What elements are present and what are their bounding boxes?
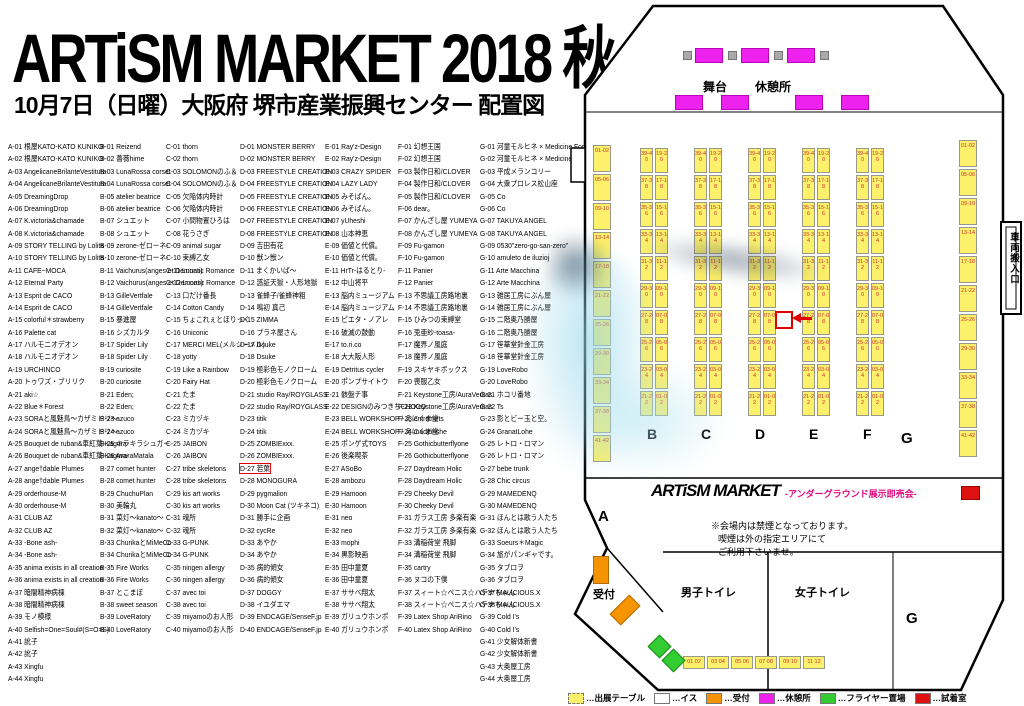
exhibit-table: 19-20 — [709, 148, 722, 173]
exhibit-table: 23-24 — [856, 364, 869, 389]
artism-market-floor-map: { "header": { "title": "ARTiSM MARKET 20… — [0, 0, 1024, 706]
exhibit-table: 03-04 — [763, 364, 776, 389]
exhibitor-entry: D-27 若葉 — [240, 463, 332, 475]
exhibit-table: 05-06 — [871, 337, 884, 362]
exhibit-table: 35-36 — [802, 202, 815, 227]
exhibit-table: 17-18 — [763, 175, 776, 200]
page-subtitle: 10月7日（日曜）大阪府 堺市産業振興センター 配置図 — [14, 86, 544, 120]
exhibitor-entry: D-39 ENDCAGE/SenseF.jp — [240, 611, 332, 623]
exhibitor-entry: D-15 ZIMMA — [240, 314, 332, 326]
floor-plan: 舞台 休憩所 01-0205-0609-1013-1417-1821-2225-… — [563, 0, 1024, 706]
exhibit-table: 01 02 — [683, 656, 705, 669]
exhibit-table: 11-12 — [655, 256, 668, 281]
exhibitor-entry: D-10 獣ン獣ン — [240, 252, 332, 264]
exhibit-table: 29-30 — [802, 283, 815, 308]
exhibit-table: 01-02 — [959, 140, 977, 167]
exhibitor-entry: D-06 FREESTYLE CREATION — [240, 203, 332, 215]
event-logo: ARTiSM MARKET — [651, 481, 780, 501]
exhibitor-entry: A-42 訛子 — [8, 648, 129, 660]
exhibitor-entry: D-13 雀蜂子/雀蜂神粗 — [240, 290, 332, 302]
legend-swatch — [759, 693, 775, 704]
exhibit-table: 25-26 — [694, 337, 707, 362]
exhibit-table: 05-06 — [655, 337, 668, 362]
exhibit-table: 03-04 — [655, 364, 668, 389]
exhibitor-entry: D-36 病的傾女 — [240, 574, 332, 586]
exhibit-table: 33-34 — [748, 229, 761, 254]
exhibit-table: 05-06 — [959, 169, 977, 196]
exhibit-table: 09-10 — [959, 198, 977, 225]
exhibitor-entry: D-35 病的傾女 — [240, 562, 332, 574]
exhibit-table: 29-30 — [856, 283, 869, 308]
exhibit-table: 37-38 — [640, 175, 653, 200]
exhibitor-entry: D-32 cycRe — [240, 525, 332, 537]
exhibit-table: 21-22 — [694, 391, 707, 416]
exhibit-table: 09-10 — [655, 283, 668, 308]
exhibit-table: 17-18 — [593, 261, 611, 288]
exhibit-table: 05-06 — [817, 337, 830, 362]
exhibit-table: 13-14 — [817, 229, 830, 254]
exhibit-table: 37-38 — [694, 175, 707, 200]
exhibit-table: 01-02 — [871, 391, 884, 416]
legend-item: …受付 — [706, 692, 750, 704]
rest-area-table — [675, 95, 703, 110]
exhibitor-entry: D-38 イユダエマ — [240, 599, 332, 611]
exhibitor-entry: D-40 ENDCAGE/SenseF.jp — [240, 624, 332, 636]
exhibit-table: 11-12 — [763, 256, 776, 281]
exhibit-table: 33-34 — [694, 229, 707, 254]
zone-letter-g2: G — [906, 610, 918, 627]
highlighted-booth-marker — [775, 311, 793, 329]
exhibit-table: 15-16 — [709, 202, 722, 227]
exhibit-table: 07-08 — [817, 310, 830, 335]
exhibit-table: 19-20 — [817, 148, 830, 173]
exhibit-table: 05-06 — [593, 174, 611, 201]
exhibitor-entry: D-22 studio Ray/ROYGLASS — [240, 401, 332, 413]
exhibitor-entry: D-01 MONSTER BERRY — [240, 141, 332, 153]
table-strip-d: 39-4037-3835-3633-3431-3229-3027-2825-26… — [748, 148, 776, 416]
exhibitor-entry: D-04 FREESTYLE CREATION — [240, 178, 332, 190]
no-smoking-notice-line3: ご利用下さいませ。 — [718, 546, 799, 559]
chair — [820, 51, 829, 60]
exhibit-table: 31-32 — [856, 256, 869, 281]
legend-item: …イス — [654, 692, 697, 704]
exhibitor-entry: D-30 Moon Cat (ツキネコ) — [240, 500, 332, 512]
exhibitor-entry: D-24 titik — [240, 426, 332, 438]
exhibit-table: 17-18 — [709, 175, 722, 200]
exhibit-table: 09-10 — [709, 283, 722, 308]
exhibitor-entry: D-25 ZOMBIExxx. — [240, 438, 332, 450]
exhibit-table: 31-32 — [748, 256, 761, 281]
exhibitor-entry: D-05 FREESTYLE CREATION — [240, 191, 332, 203]
rest-area-table — [841, 95, 869, 110]
exhibit-table: 21-22 — [593, 290, 611, 317]
exhibit-table: 15-16 — [655, 202, 668, 227]
exhibit-table: 15-16 — [763, 202, 776, 227]
exhibit-table: 15-16 — [817, 202, 830, 227]
rest-area-table — [787, 48, 815, 63]
exhibit-table: 37-38 — [748, 175, 761, 200]
exhibit-table: 17-18 — [959, 256, 977, 283]
fitting-room-block — [961, 486, 980, 500]
exhibit-table: 39-40 — [802, 148, 815, 173]
exhibitor-entry: D-29 pygmalion — [240, 488, 332, 500]
exhibit-table: 11-12 — [817, 256, 830, 281]
exhibitor-entry: D-18 Dsuke — [240, 351, 332, 363]
legend-item: …フライヤー置場 — [820, 692, 906, 704]
legend-label: …休憩所 — [777, 692, 811, 704]
exhibit-table: 05-06 — [709, 337, 722, 362]
exhibitor-entry: D-16 プラネ屋さん — [240, 327, 332, 339]
exhibit-table: 41-42 — [959, 430, 977, 457]
exhibitor-entry: D-26 ZOMBIExxx. — [240, 450, 332, 462]
mens-toilet-label: 男子トイレ — [681, 584, 736, 600]
exhibit-table: 33-34 — [640, 229, 653, 254]
exhibit-table: 13-14 — [655, 229, 668, 254]
exhibitor-entry: A-43 Xingfu — [8, 661, 129, 673]
zone-letter-a: A — [598, 508, 609, 525]
vehicle-entrance-label: 車両搬入口 — [1006, 232, 1020, 285]
table-strip-e: 39-4037-3835-3633-3431-3229-3027-2825-26… — [802, 148, 830, 416]
zone-letter-d: D — [755, 426, 765, 442]
exhibit-table: 21-22 — [959, 285, 977, 312]
exhibitor-entry: D-07 FREESTYLE CREATION — [240, 215, 332, 227]
exhibit-table: 29-30 — [593, 348, 611, 375]
exhibit-table: 07-08 — [709, 310, 722, 335]
exhibit-table: 13-14 — [593, 232, 611, 259]
exhibit-table: 25-26 — [593, 319, 611, 346]
exhibit-table: 01-02 — [763, 391, 776, 416]
exhibit-table: 39-40 — [856, 148, 869, 173]
exhibit-table: 25-26 — [959, 314, 977, 341]
exhibit-table: 37-38 — [856, 175, 869, 200]
exhibitor-entry: D-21 studio Ray/ROYGLASS — [240, 389, 332, 401]
exhibit-table: 41-42 — [593, 435, 611, 462]
legend-label: …受付 — [724, 692, 750, 704]
legend-label: …イス — [672, 692, 697, 704]
exhibitor-entry: D-23 titik — [240, 413, 332, 425]
exhibit-table: 25-26 — [748, 337, 761, 362]
exhibit-table: 13-14 — [959, 227, 977, 254]
exhibit-table: 23-24 — [640, 364, 653, 389]
exhibit-table: 11-12 — [709, 256, 722, 281]
exhibit-table: 35-36 — [748, 202, 761, 227]
exhibit-table: 35-36 — [856, 202, 869, 227]
exhibit-table: 29-30 — [640, 283, 653, 308]
no-smoking-notice-line1: ※会場内は禁煙となっております。 — [711, 520, 853, 533]
exhibit-table: 21-22 — [802, 391, 815, 416]
exhibit-table: 25-26 — [856, 337, 869, 362]
reception-label: 受付 — [593, 586, 615, 602]
exhibit-table: 09 10 — [779, 656, 801, 669]
legend-swatch — [706, 693, 722, 704]
legend-swatch — [915, 693, 931, 704]
legend-swatch — [820, 693, 836, 704]
table-strip-f: 39-4037-3835-3633-3431-3229-3027-2825-26… — [856, 148, 884, 416]
exhibit-table: 09-10 — [817, 283, 830, 308]
exhibitor-entry: D-28 MONOGURA — [240, 475, 332, 487]
exhibit-table: 29-30 — [694, 283, 707, 308]
exhibit-table: 29-30 — [959, 343, 977, 370]
exhibit-table: 03-04 — [709, 364, 722, 389]
womens-toilet-label: 女子トイレ — [795, 584, 850, 600]
exhibit-table: 31-32 — [640, 256, 653, 281]
exhibit-table: 11 12 — [803, 656, 825, 669]
zone-letter-e: E — [809, 426, 818, 442]
event-logo-subtitle: -アンダーグラウンド展示即売会- — [785, 487, 917, 500]
exhibit-table: 19-20 — [655, 148, 668, 173]
zone-letter-f: F — [863, 426, 872, 442]
exhibit-table: 03-04 — [817, 364, 830, 389]
exhibitor-entry: D-37 DOGGY — [240, 587, 332, 599]
exhibit-table: 37-38 — [593, 406, 611, 433]
exhibit-table: 13-14 — [871, 229, 884, 254]
exhibitor-entry: D-03 FREESTYLE CREATION — [240, 166, 332, 178]
exhibit-table: 39-40 — [694, 148, 707, 173]
exhibit-table: 35-36 — [694, 202, 707, 227]
rest-area-table — [741, 48, 769, 63]
legend-swatch — [654, 693, 670, 704]
chair — [683, 51, 692, 60]
table-strip-bottom: 01 0203 0405 0607 0809 1011 12 — [683, 656, 825, 669]
exhibitor-entry: A-41 訛子 — [8, 636, 129, 648]
exhibit-table: 21-22 — [748, 391, 761, 416]
exhibitor-entry: D-14 鳴初 真己 — [240, 302, 332, 314]
exhibit-table: 29-30 — [748, 283, 761, 308]
exhibit-table: 27-28 — [694, 310, 707, 335]
table-strip-b: 39-4037-3835-3633-3431-3229-3027-2825-26… — [640, 148, 668, 416]
exhibit-table: 37-38 — [959, 401, 977, 428]
exhibitor-entry: D-31 勝手に企画 — [240, 512, 332, 524]
exhibit-table: 17-18 — [655, 175, 668, 200]
exhibit-table: 25-26 — [640, 337, 653, 362]
exhibitor-entry: D-09 吉田有花 — [240, 240, 332, 252]
exhibit-table: 33-34 — [959, 372, 977, 399]
rest-area-table — [695, 48, 723, 63]
exhibit-table: 11-12 — [871, 256, 884, 281]
reception-desk — [593, 556, 609, 584]
exhibit-table: 27-28 — [640, 310, 653, 335]
booth-marker-arrow — [792, 313, 812, 323]
exhibit-table: 05-06 — [763, 337, 776, 362]
exhibit-table: 27-28 — [748, 310, 761, 335]
legend-item: …休憩所 — [759, 692, 811, 704]
exhibit-table: 07 08 — [755, 656, 777, 669]
legend-item: …出展テーブル — [568, 692, 645, 704]
chair — [728, 51, 737, 60]
exhibit-table: 33-34 — [802, 229, 815, 254]
exhibitor-column-d: D-01 MONSTER BERRYD-02 MONSTER BERRYD-03… — [240, 141, 338, 636]
no-smoking-notice-line2: 喫煙は外の指定エリアにて — [718, 533, 826, 546]
exhibit-table: 01-02 — [593, 145, 611, 172]
exhibitor-entry: D-12 惑証天獄・人形地獄 — [240, 277, 332, 289]
exhibit-table: 01-02 — [817, 391, 830, 416]
exhibitor-entry: D-02 MONSTER BERRY — [240, 153, 332, 165]
table-strip-a: 01-0205-0609-1013-1417-1821-2225-2629-30… — [593, 145, 611, 462]
exhibit-table: 09-10 — [871, 283, 884, 308]
rest-area-table — [795, 95, 823, 110]
zone-letter-g: G — [901, 430, 913, 447]
exhibitor-entry: D-33 あやか — [240, 537, 332, 549]
exhibit-table: 31-32 — [694, 256, 707, 281]
exhibit-table: 15-16 — [871, 202, 884, 227]
exhibit-table: 13-14 — [709, 229, 722, 254]
exhibit-table: 21-22 — [640, 391, 653, 416]
rest-area-table — [721, 95, 749, 110]
exhibit-table: 35-36 — [640, 202, 653, 227]
exhibit-table: 03-04 — [871, 364, 884, 389]
exhibitor-entry: D-11 まくかいば〜 — [240, 265, 332, 277]
exhibit-table: 09-10 — [763, 283, 776, 308]
legend-swatch — [568, 693, 584, 704]
legend-label: …フライヤー置場 — [838, 692, 906, 704]
exhibit-table: 09-10 — [593, 203, 611, 230]
exhibit-table: 25-26 — [802, 337, 815, 362]
exhibitor-entry: D-17 Dsuke — [240, 339, 332, 351]
exhibit-table: 37-38 — [802, 175, 815, 200]
exhibit-table: 39-40 — [640, 148, 653, 173]
exhibitor-entry: D-19 極彩色モノクローム — [240, 364, 332, 376]
exhibit-table: 05 06 — [731, 656, 753, 669]
exhibit-table: 07-08 — [871, 310, 884, 335]
exhibit-table: 17-18 — [817, 175, 830, 200]
chair — [774, 51, 783, 60]
zone-letter-b: B — [647, 426, 657, 442]
exhibitor-entry: D-08 FREESTYLE CREATION — [240, 228, 332, 240]
exhibit-table: 19-20 — [871, 148, 884, 173]
exhibitor-entry: A-44 Xingfu — [8, 673, 129, 685]
table-strip-g: 01-0205-0609-1013-1417-1821-2225-2629-30… — [959, 140, 977, 457]
exhibitor-entry: D-34 あやか — [240, 549, 332, 561]
zone-letter-c: C — [701, 426, 711, 442]
exhibit-table: 23-24 — [748, 364, 761, 389]
exhibit-table: 07-08 — [655, 310, 668, 335]
exhibitor-entry: D-20 極彩色モノクローム — [240, 376, 332, 388]
exhibit-table: 03 04 — [707, 656, 729, 669]
exhibit-table: 33-34 — [593, 377, 611, 404]
exhibit-table: 13-14 — [763, 229, 776, 254]
legend-item: …試着室 — [915, 692, 967, 704]
exhibit-table: 23-24 — [802, 364, 815, 389]
exhibit-table: 39-40 — [748, 148, 761, 173]
exhibit-table: 01-02 — [709, 391, 722, 416]
exhibit-table: 19-20 — [763, 148, 776, 173]
legend-label: …試着室 — [933, 692, 967, 704]
rest-area-label: 休憩所 — [755, 78, 791, 95]
exhibit-table: 21-22 — [856, 391, 869, 416]
exhibit-table: 27-28 — [856, 310, 869, 335]
exhibit-table: 01-02 — [655, 391, 668, 416]
legend-label: …出展テーブル — [586, 692, 645, 704]
exhibit-table: 17-18 — [871, 175, 884, 200]
exhibit-table: 31-32 — [802, 256, 815, 281]
exhibit-table: 23-24 — [694, 364, 707, 389]
stage-label: 舞台 — [703, 78, 727, 95]
exhibit-table: 33-34 — [856, 229, 869, 254]
table-strip-c: 39-4037-3835-3633-3431-3229-3027-2825-26… — [694, 148, 722, 416]
map-legend: …出展テーブル…イス…受付…休憩所…フライヤー置場…試着室 — [568, 692, 967, 704]
